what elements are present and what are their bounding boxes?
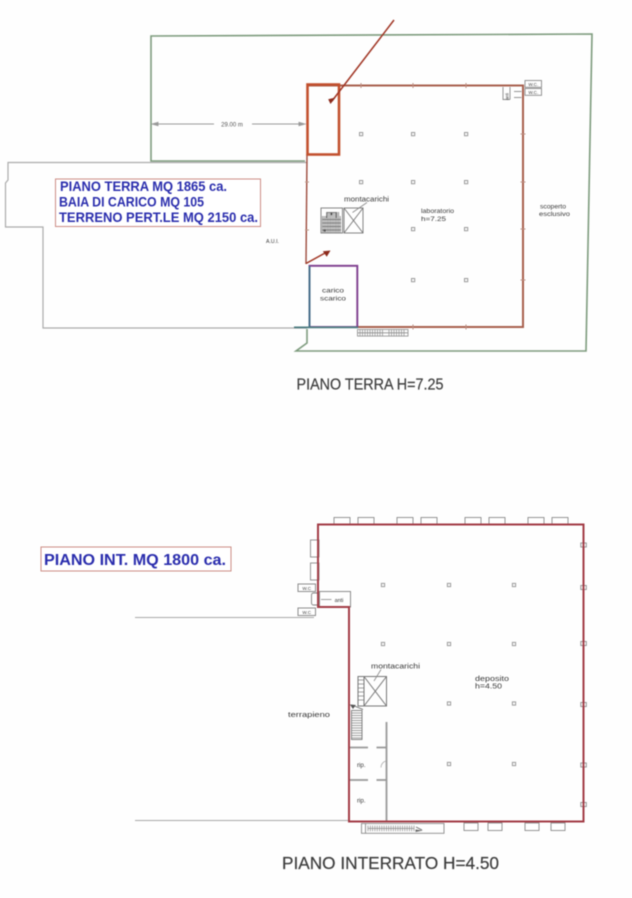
svg-text:rip.: rip. [357, 798, 366, 805]
svg-text:scoperto: scoperto [540, 204, 566, 211]
svg-text:TERRENO PERT.LE MQ 2150 ca.: TERRENO PERT.LE MQ 2150 ca. [59, 209, 258, 225]
svg-text:W.C.: W.C. [528, 82, 538, 87]
svg-text:terrapieno: terrapieno [288, 710, 330, 719]
svg-text:W.C.: W.C. [528, 90, 538, 95]
svg-text:29.00 m: 29.00 m [221, 123, 243, 129]
svg-text:anti: anti [505, 93, 510, 100]
svg-text:PIANO TERRA MQ 1865 ca.: PIANO TERRA MQ 1865 ca. [60, 178, 227, 194]
svg-text:PIANO INTERRATO H=4.50: PIANO INTERRATO H=4.50 [282, 853, 499, 873]
svg-text:A.U.I.: A.U.I. [266, 239, 279, 245]
svg-text:PIANO INT. MQ 1800 ca.: PIANO INT. MQ 1800 ca. [44, 552, 226, 569]
svg-text:carico: carico [322, 288, 344, 295]
svg-text:PIANO TERRA H=7.25: PIANO TERRA H=7.25 [297, 377, 444, 394]
svg-text:h=7.25: h=7.25 [421, 216, 446, 223]
svg-text:h=4.50: h=4.50 [475, 684, 502, 691]
svg-text:montacarichi: montacarichi [371, 664, 421, 671]
svg-text:BAIA DI CARICO MQ 105: BAIA DI CARICO MQ 105 [59, 194, 204, 210]
svg-text:rip.: rip. [357, 762, 366, 769]
svg-text:W.C: W.C [302, 586, 311, 591]
svg-text:deposito: deposito [475, 676, 509, 683]
svg-text:W.C: W.C [302, 610, 311, 615]
svg-text:scarico: scarico [320, 296, 346, 303]
svg-text:esclusivo: esclusivo [539, 211, 570, 218]
svg-text:laboratorio: laboratorio [421, 208, 454, 215]
svg-text:anti: anti [335, 598, 344, 604]
